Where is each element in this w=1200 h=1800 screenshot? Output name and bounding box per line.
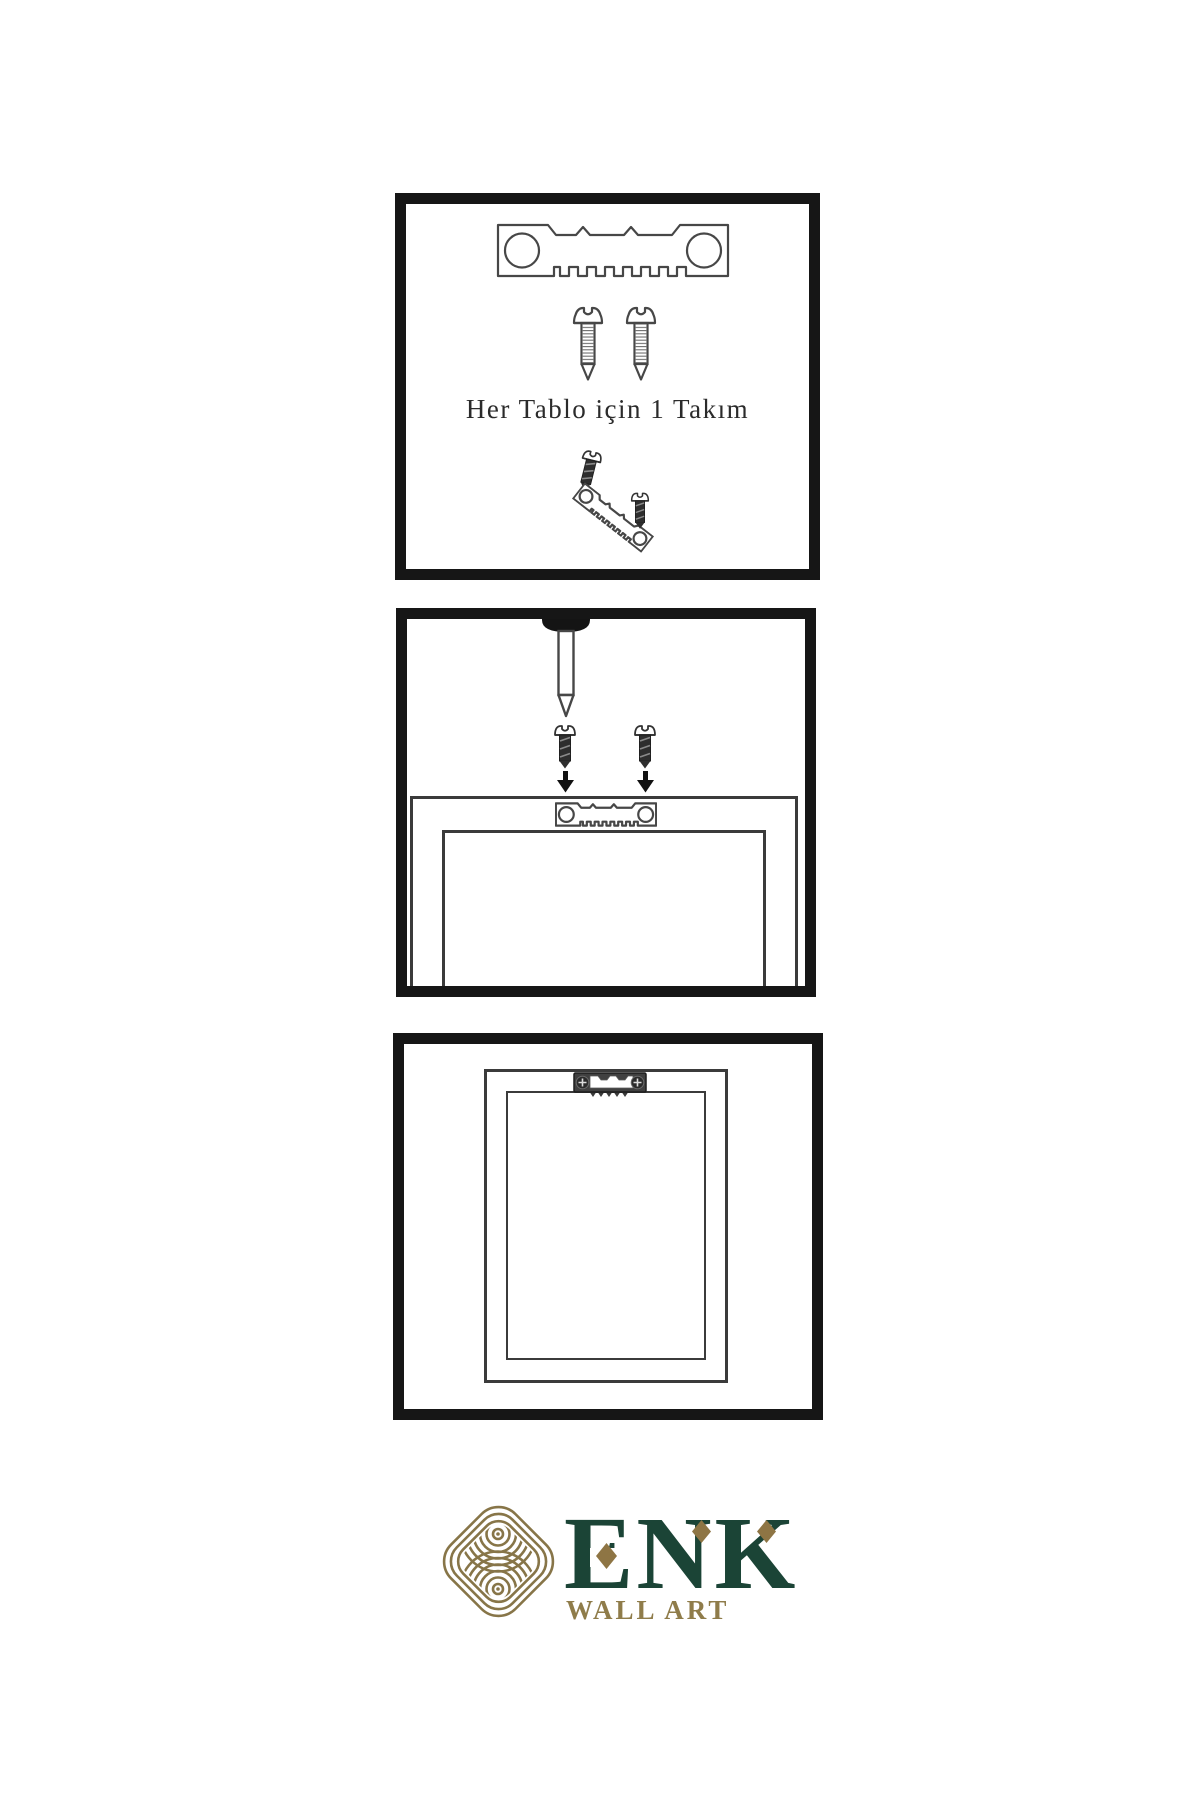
screw-icon — [630, 490, 650, 530]
screw-icon — [624, 304, 658, 381]
panel-hung-frame — [393, 1033, 823, 1420]
diamond-accent-icon — [757, 1520, 776, 1543]
brand-tagline: WALL ART — [566, 1595, 729, 1626]
frame-back-inner — [506, 1091, 706, 1360]
hanger-plate-icon — [573, 1071, 647, 1099]
sawtooth-hanger-icon — [555, 802, 657, 827]
kit-caption: Her Tablo için 1 Takım — [406, 394, 809, 425]
down-arrow-icon — [557, 771, 574, 793]
screw-icon — [571, 304, 605, 381]
sawtooth-hanger-icon — [496, 223, 730, 278]
diamond-accent-icon — [692, 1520, 711, 1543]
wall-nail-icon — [542, 619, 590, 719]
down-arrow-icon — [637, 771, 654, 793]
panel-wall-installation — [396, 608, 816, 997]
knot-logo-icon — [435, 1498, 562, 1625]
screw-icon — [633, 723, 657, 769]
panel-hardware-kit: Her Tablo için 1 Takım — [395, 193, 820, 580]
screw-icon — [553, 723, 577, 769]
diamond-accent-icon — [596, 1543, 617, 1569]
frame-back-inner — [442, 830, 766, 997]
